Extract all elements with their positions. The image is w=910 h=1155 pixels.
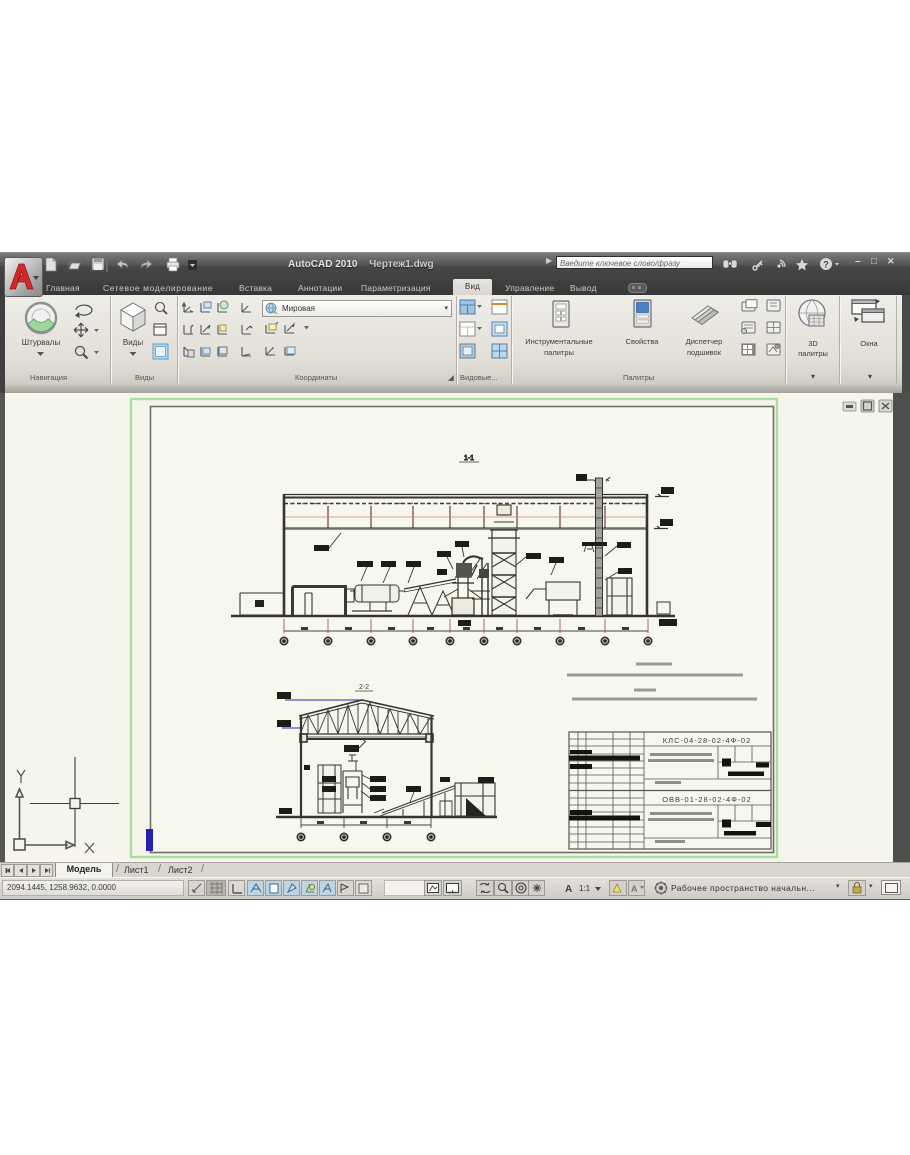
svg-text:Диспетчер: Диспетчер bbox=[686, 337, 723, 346]
svg-text:1-1: 1-1 bbox=[464, 455, 474, 462]
svg-text:палитры: палитры bbox=[798, 349, 828, 358]
svg-text:Инструментальные: Инструментальные bbox=[525, 337, 592, 346]
svg-text:Штурвалы: Штурвалы bbox=[22, 338, 61, 347]
svg-text:Виды: Виды bbox=[123, 338, 143, 347]
svg-text:1:1: 1:1 bbox=[579, 884, 591, 893]
svg-text:палитры: палитры bbox=[544, 348, 574, 357]
svg-text:А: А bbox=[565, 884, 572, 895]
svg-text:Окна: Окна bbox=[860, 339, 878, 348]
svg-text:2-2: 2-2 bbox=[359, 684, 369, 691]
svg-text:?: ? bbox=[823, 260, 829, 270]
svg-text:КЛС-04-28-02-4Ф-02: КЛС-04-28-02-4Ф-02 bbox=[663, 736, 751, 745]
svg-text:А: А bbox=[631, 884, 638, 894]
svg-text:3D: 3D bbox=[808, 339, 818, 348]
svg-text:Свойства: Свойства bbox=[626, 337, 660, 346]
svg-text:ОВВ-01-28-02-4Ф-02: ОВВ-01-28-02-4Ф-02 bbox=[662, 795, 752, 804]
svg-text:подшивок: подшивок bbox=[687, 348, 722, 357]
